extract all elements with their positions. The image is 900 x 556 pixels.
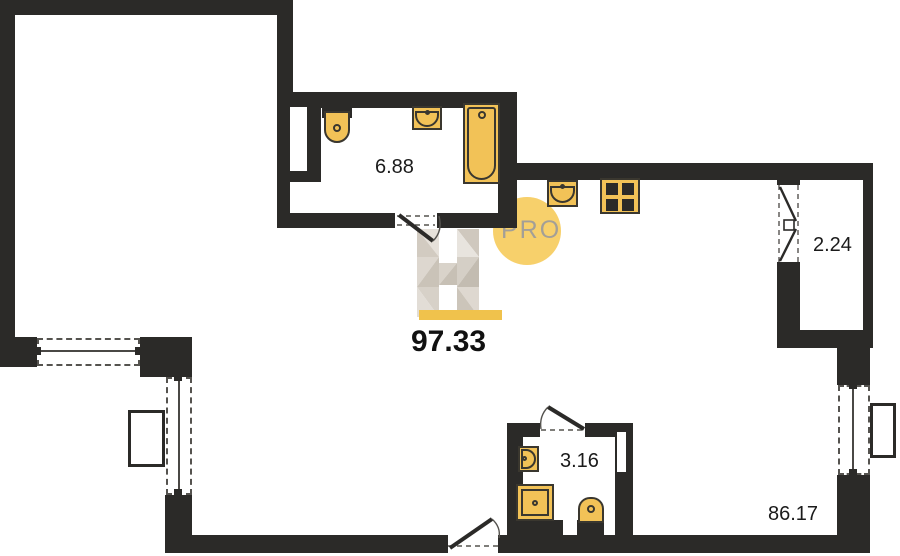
stove-burner <box>606 183 618 195</box>
shower-drain-dot <box>532 500 538 506</box>
wall <box>165 535 448 553</box>
door-leaf <box>548 407 584 429</box>
stove-burner <box>622 199 634 211</box>
window <box>37 338 140 366</box>
area-label-balcony: 2.24 <box>813 234 852 257</box>
wall <box>165 495 192 553</box>
door-opening-dashes <box>397 216 435 225</box>
stove-burner <box>622 183 634 195</box>
window-end-square <box>135 347 143 355</box>
wall <box>0 337 37 367</box>
watermark-underline <box>419 310 502 320</box>
window-end-square <box>849 469 857 477</box>
wall <box>507 423 540 437</box>
toilet-flush-dot <box>587 505 595 513</box>
window-end-square <box>174 489 182 497</box>
wall <box>140 337 192 377</box>
sink-drain-dot <box>522 456 527 461</box>
bifold-door-leaf <box>780 187 796 221</box>
area-label-bathroom-bottom: 3.16 <box>560 450 599 473</box>
window-centerline <box>178 377 180 495</box>
window <box>838 385 870 475</box>
area-label-bathroom-top: 6.88 <box>375 156 414 179</box>
wall <box>777 330 873 348</box>
toilet-flush-dot <box>333 124 341 132</box>
wall <box>507 520 563 535</box>
area-label-total: 97.33 <box>411 325 486 359</box>
wall <box>498 535 870 553</box>
door-swing-arc <box>541 407 548 429</box>
wall <box>863 163 873 348</box>
kitchen-sink-dot <box>560 184 565 189</box>
wall-niche <box>617 432 626 472</box>
exterior-basket <box>128 410 165 467</box>
wall <box>0 15 15 337</box>
floor-plan: PRO <box>0 0 900 556</box>
window-centerline <box>852 385 854 475</box>
wall <box>777 170 800 185</box>
wall <box>837 348 870 385</box>
stove-burner <box>606 199 618 211</box>
exterior-basket <box>870 403 896 458</box>
wall <box>498 92 517 228</box>
bifold-door-handle <box>784 220 794 230</box>
wall <box>0 0 293 15</box>
window-centerline <box>37 350 140 352</box>
window-end-square <box>33 347 41 355</box>
sink-drain-dot <box>425 110 430 115</box>
area-label-main-room: 86.17 <box>768 503 818 526</box>
window-end-square <box>174 373 182 381</box>
window-end-square <box>849 381 857 389</box>
wall <box>517 163 873 180</box>
bathtub-drain-dot <box>478 111 486 119</box>
wall <box>277 213 395 228</box>
bifold-door-leaf <box>780 229 796 261</box>
watermark-letter-h-icon <box>417 229 479 317</box>
door-leaf <box>450 519 492 548</box>
bifold-door-dashes <box>779 185 798 262</box>
wall-niche <box>290 107 307 171</box>
wall <box>437 213 517 228</box>
